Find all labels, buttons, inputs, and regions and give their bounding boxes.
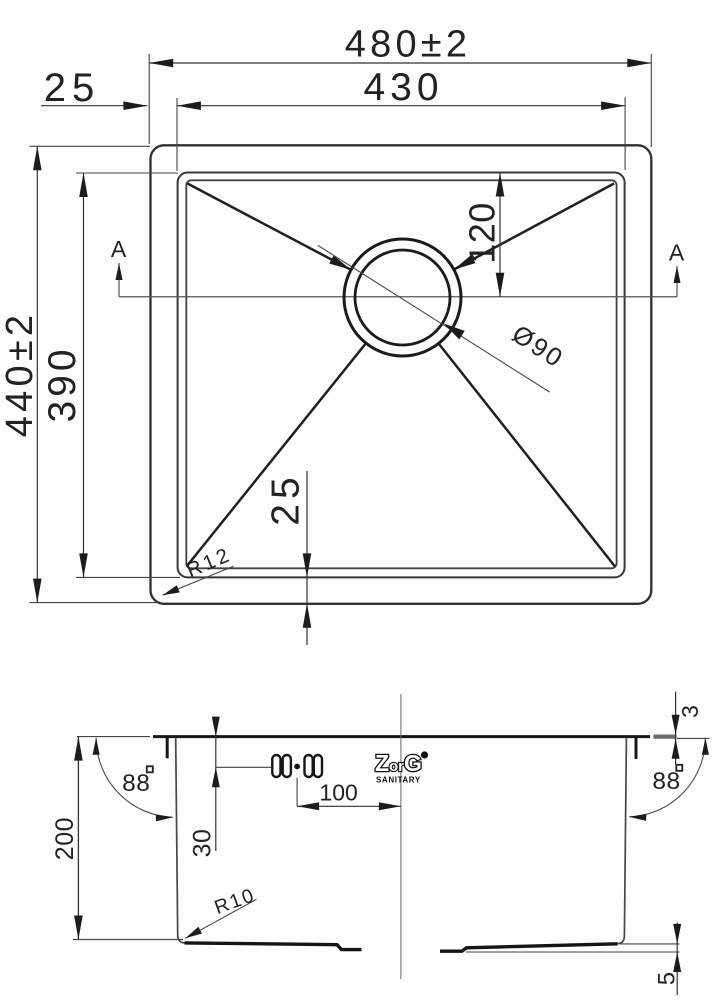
- svg-text:Z: Z: [375, 750, 389, 776]
- svg-text:120: 120: [462, 202, 503, 264]
- svg-text:25: 25: [265, 472, 308, 525]
- svg-text:5: 5: [654, 971, 681, 985]
- svg-text:A: A: [669, 240, 685, 266]
- svg-text:3: 3: [677, 704, 703, 718]
- svg-text:or: or: [389, 758, 404, 775]
- svg-text:25: 25: [44, 66, 101, 110]
- svg-text:430: 430: [363, 66, 443, 109]
- svg-text:480±2: 480±2: [345, 23, 471, 65]
- svg-text:440±2: 440±2: [0, 311, 41, 437]
- svg-text:390: 390: [41, 345, 84, 422]
- svg-text:200: 200: [51, 817, 79, 860]
- svg-text:30: 30: [189, 829, 217, 858]
- svg-text:SANITARY: SANITARY: [376, 776, 421, 785]
- svg-text:G: G: [404, 750, 422, 776]
- svg-text:88: 88: [122, 770, 150, 797]
- svg-text:88: 88: [652, 768, 680, 795]
- svg-text:100: 100: [319, 779, 357, 805]
- svg-text:A: A: [111, 236, 127, 262]
